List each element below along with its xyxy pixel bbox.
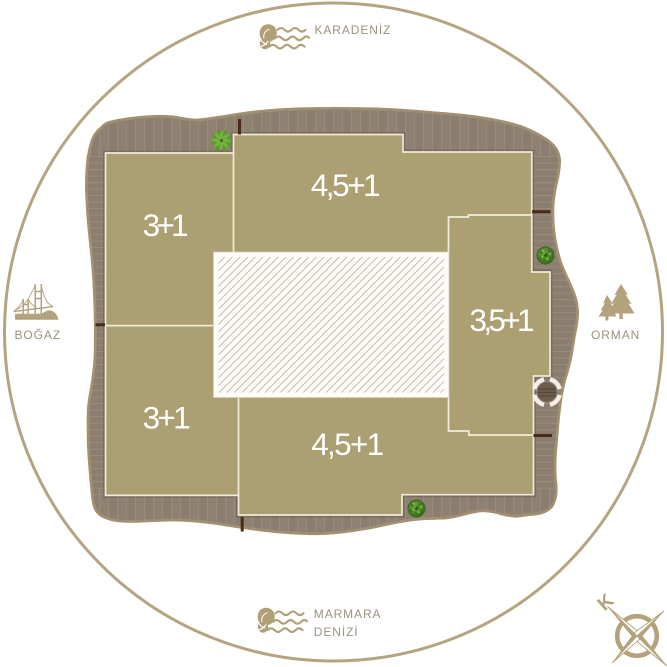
svg-text:K: K — [593, 590, 618, 616]
svg-text:3,5+1: 3,5+1 — [470, 302, 535, 338]
svg-text:3+1: 3+1 — [143, 207, 189, 243]
svg-text:4,5+1: 4,5+1 — [311, 167, 381, 203]
svg-text:DENİZİ: DENİZİ — [314, 625, 359, 639]
svg-text:MARMARA: MARMARA — [314, 607, 382, 621]
svg-text:KARADENİZ: KARADENİZ — [315, 23, 392, 37]
svg-text:4,5+1: 4,5+1 — [311, 426, 384, 462]
svg-text:ORMAN: ORMAN — [591, 328, 640, 342]
svg-text:3+1: 3+1 — [143, 400, 191, 436]
svg-text:BOĞAZ: BOĞAZ — [15, 327, 62, 342]
